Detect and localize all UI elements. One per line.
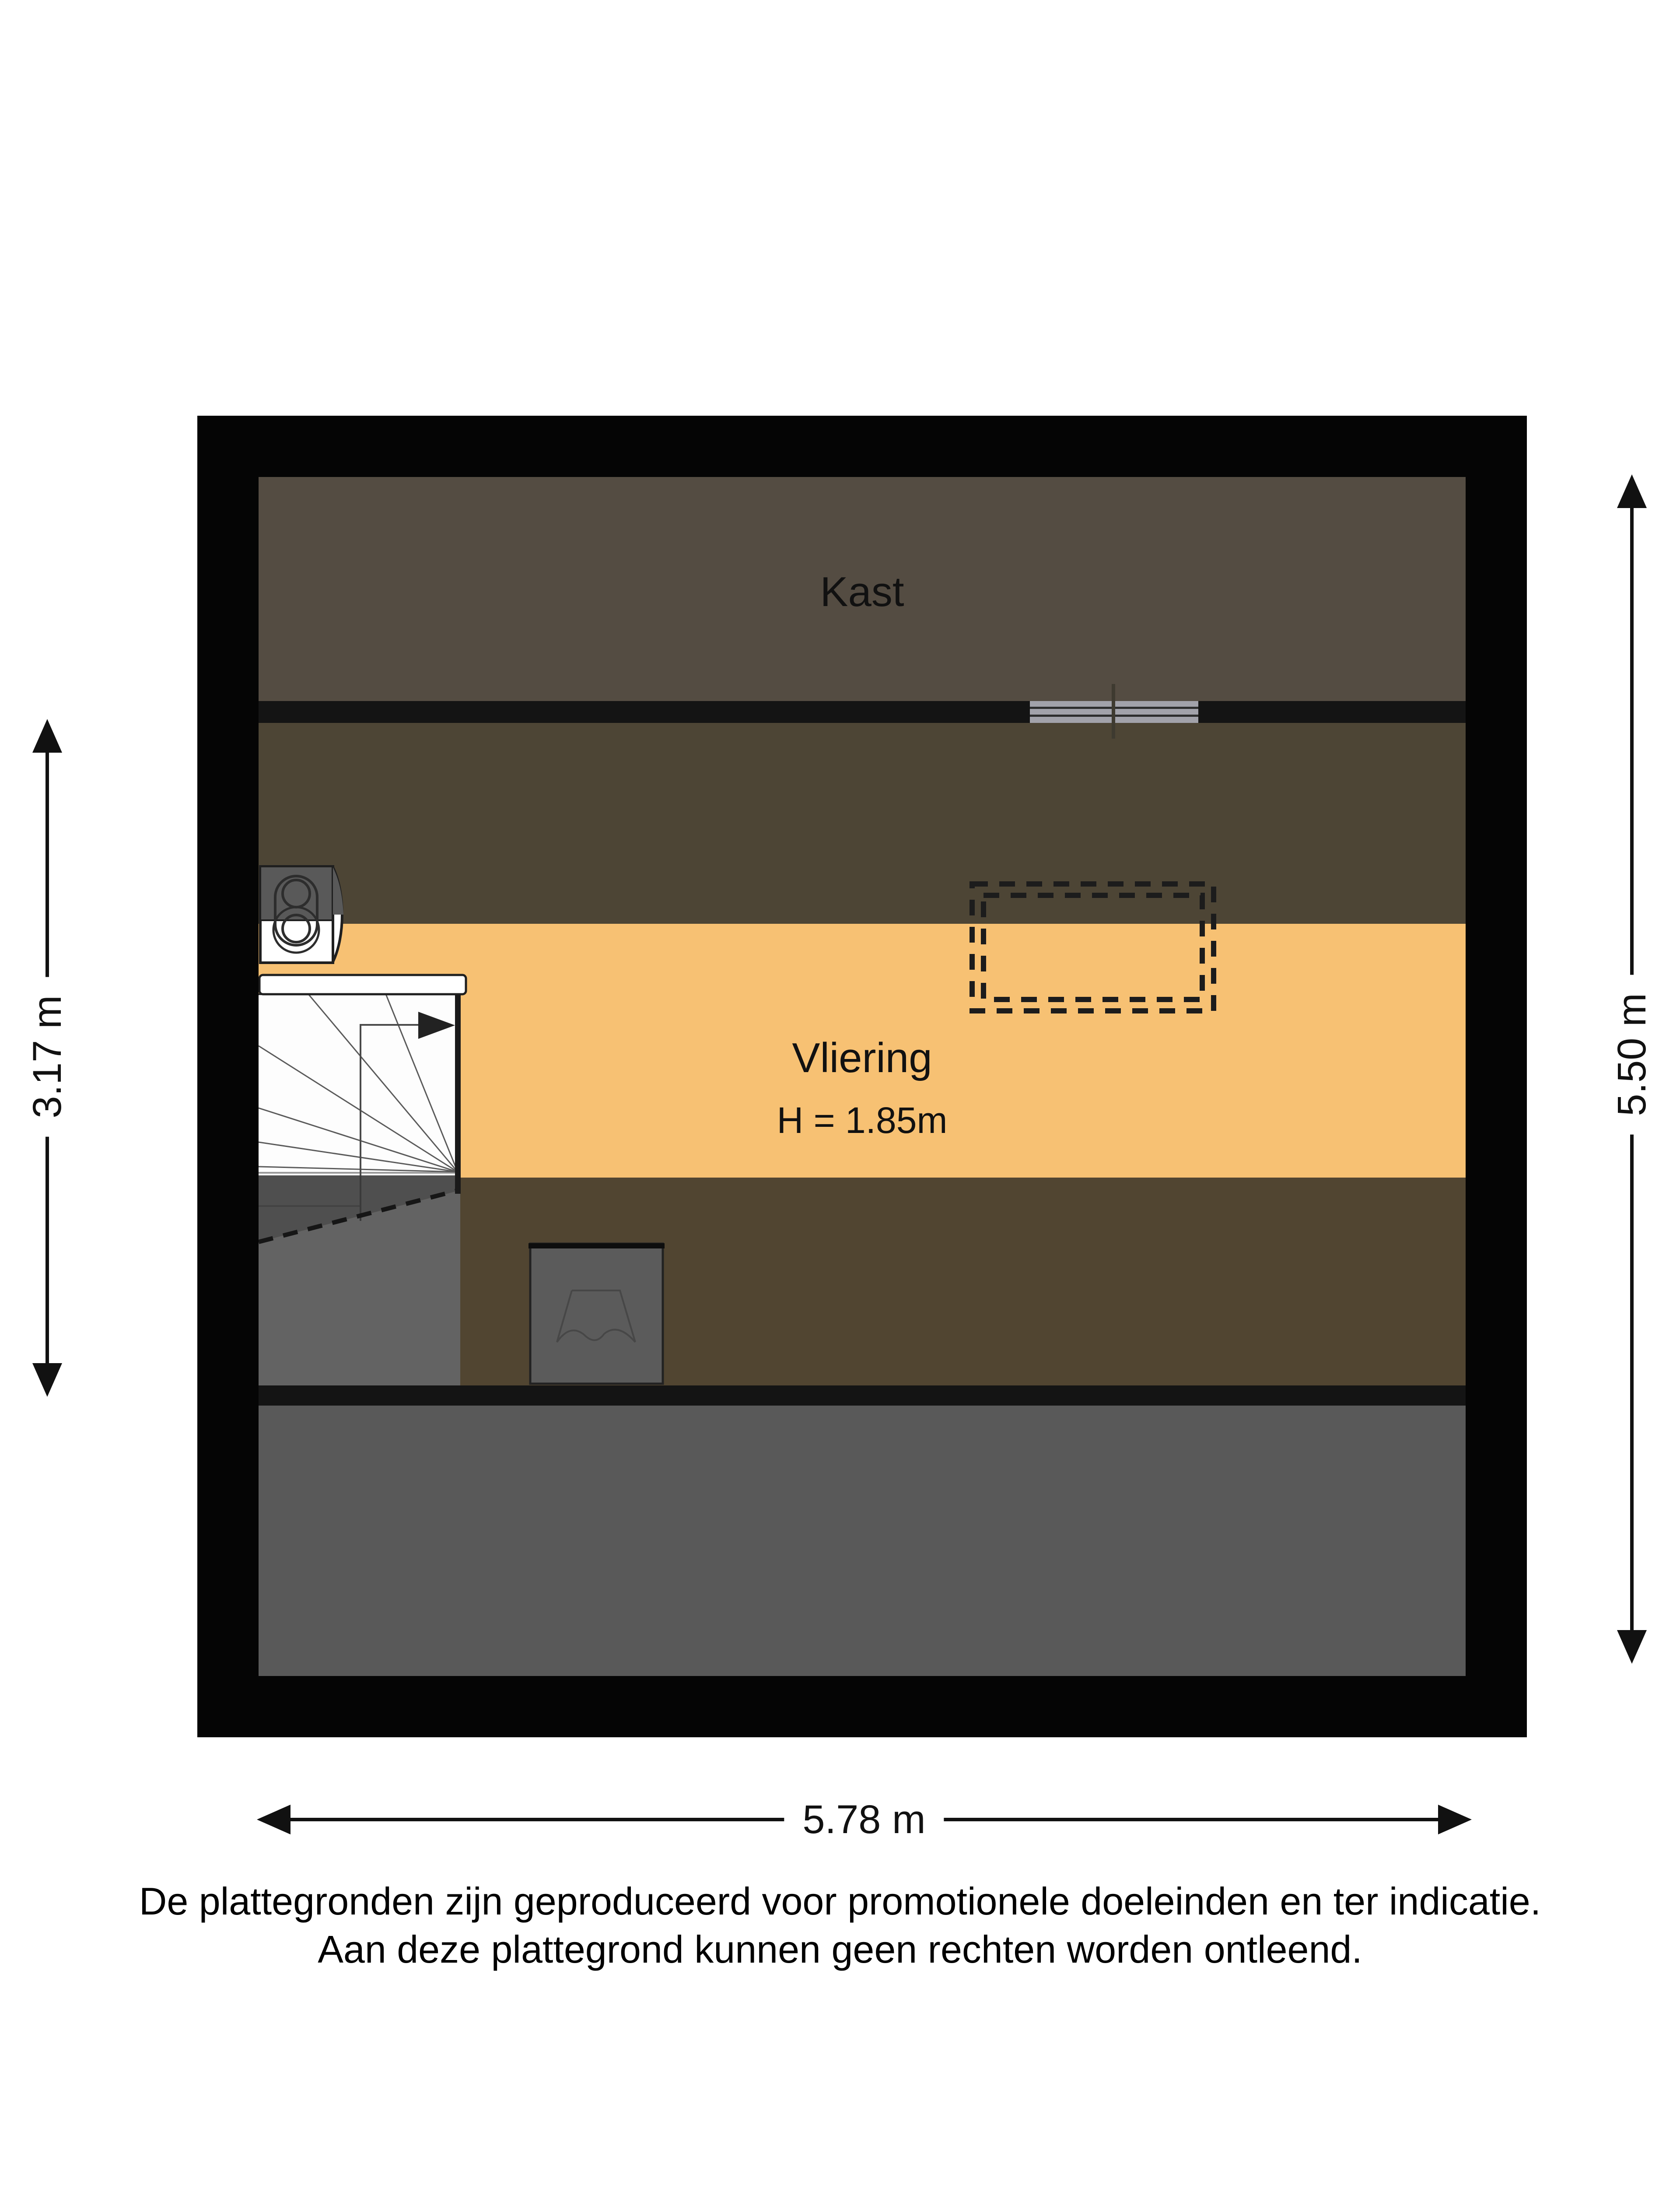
dimension-left-label: 3.17 m: [24, 977, 70, 1136]
floorplan-frame: Kast Vliering H = 1.85m: [197, 416, 1527, 1737]
skylight-dashed-outline-icon: [972, 884, 1214, 1011]
dimension-left: 3.17 m: [17, 711, 78, 1405]
dimension-bottom: 5.78 m: [245, 1785, 1483, 1855]
vliering-height-label: H = 1.85m: [259, 1102, 1466, 1139]
disclaimer-text: De plattegronden zijn geproduceerd voor …: [0, 1877, 1680, 1974]
staircase-icon: [259, 975, 466, 1194]
boiler-icon: [260, 866, 343, 963]
dimension-right-label: 5.50 m: [1609, 975, 1655, 1134]
dimension-bottom-label: 5.78 m: [784, 1797, 944, 1842]
vliering-room-label: Vliering: [259, 1037, 1466, 1079]
stair-handrail: [259, 975, 466, 994]
understair-area: [259, 1175, 460, 1385]
disclaimer-line-2: Aan deze plattegrond kunnen geen rechten…: [0, 1925, 1680, 1974]
dimension-right: 5.50 m: [1601, 465, 1662, 1673]
roof-window-icon: [528, 1244, 665, 1384]
disclaimer-line-1: De plattegronden zijn geproduceerd voor …: [0, 1877, 1680, 1925]
kast-room-label: Kast: [259, 571, 1466, 613]
floorplan-interior: Kast Vliering H = 1.85m: [259, 477, 1466, 1676]
